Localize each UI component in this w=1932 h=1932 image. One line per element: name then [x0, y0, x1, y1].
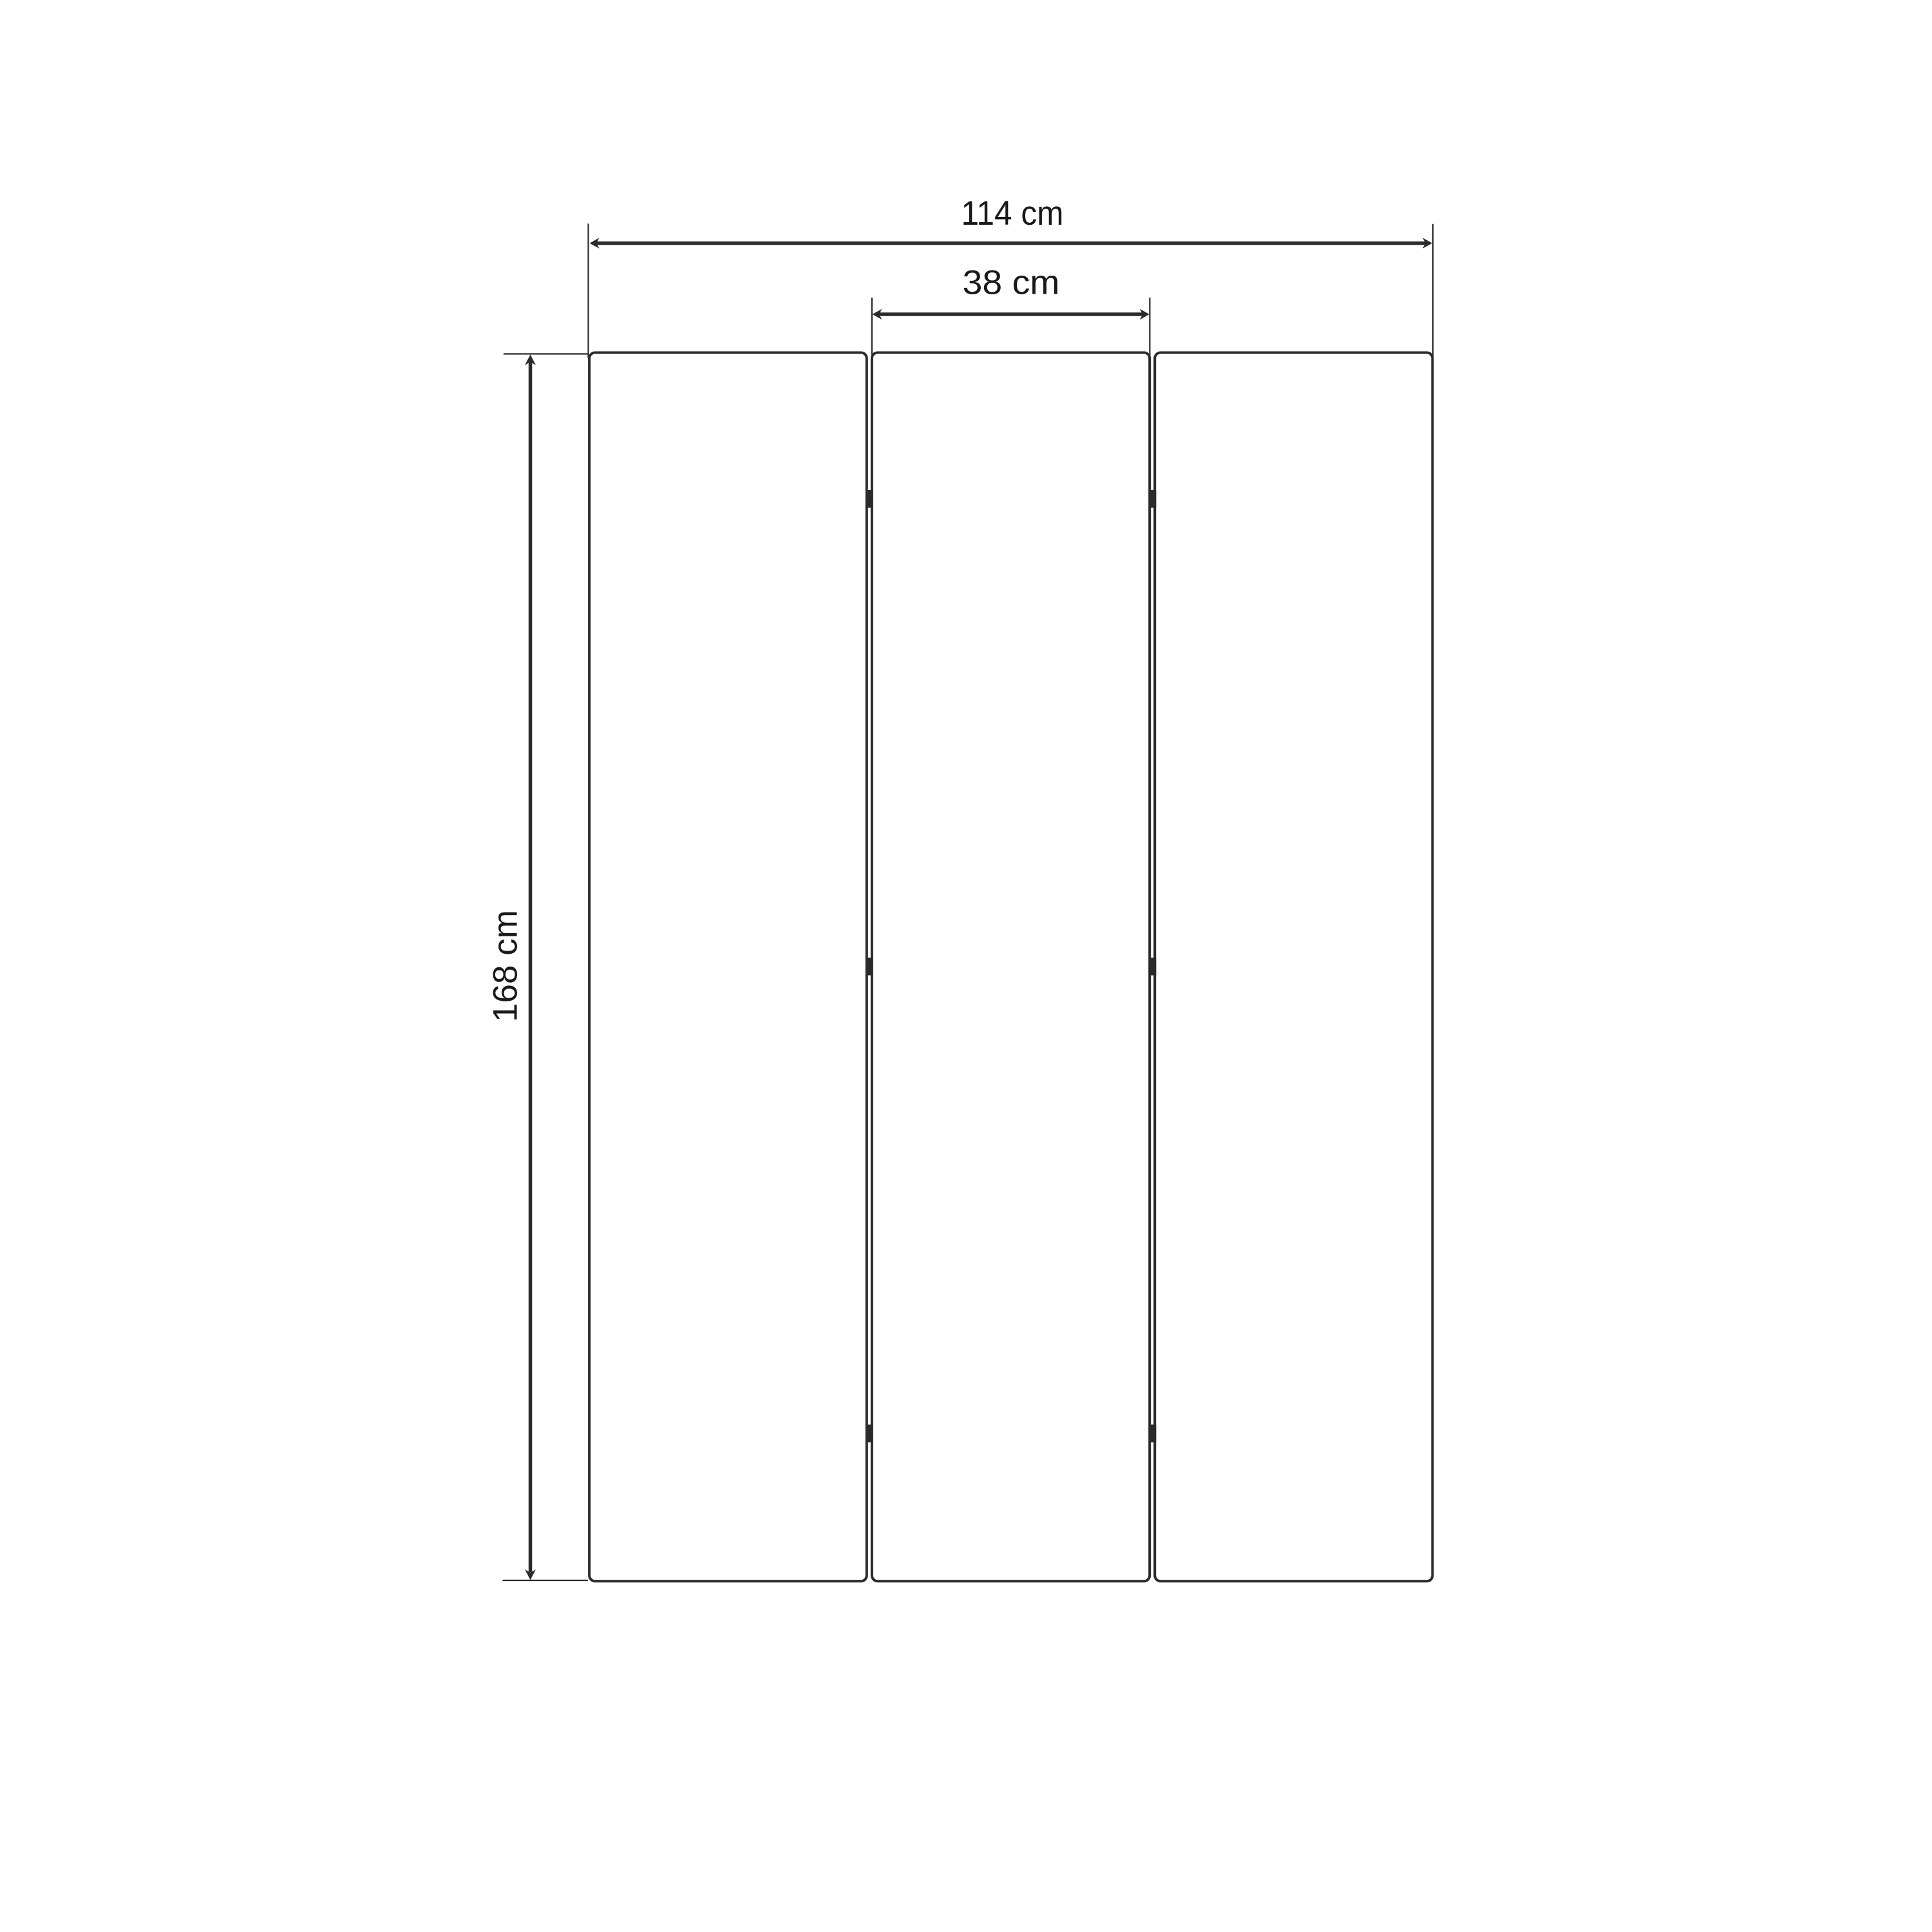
svg-text:38 cm: 38 cm — [963, 264, 1060, 302]
svg-text:114 cm: 114 cm — [961, 194, 1064, 232]
svg-text:168 cm: 168 cm — [487, 910, 525, 1022]
